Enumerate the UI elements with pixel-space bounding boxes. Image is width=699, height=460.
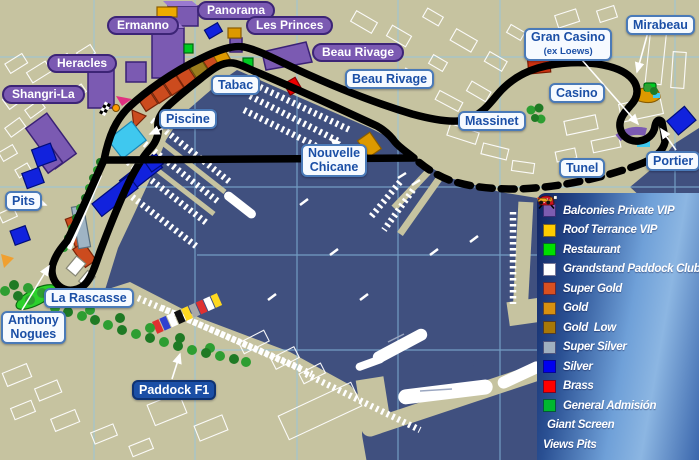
f1-car-icon bbox=[537, 193, 557, 207]
anthony-line1: Anthony bbox=[8, 313, 59, 327]
legend-swatch bbox=[543, 224, 556, 237]
label-pits: Pits bbox=[5, 191, 42, 211]
anthony-line2: Nogues bbox=[10, 327, 56, 341]
label-nouvelle-chicane: Nouvelle Chicane bbox=[301, 144, 367, 177]
label-ermanno: Ermanno bbox=[107, 16, 179, 35]
legend-label: Giant Screen bbox=[547, 419, 614, 431]
label-shangri-la: Shangri-La bbox=[2, 85, 85, 104]
legend-swatch bbox=[543, 282, 556, 295]
nouvelle-line1: Nouvelle bbox=[308, 146, 360, 160]
label-gran-casino: Gran Casino (ex Loews) bbox=[524, 28, 612, 61]
legend-item: Roof Terrance VIP bbox=[543, 221, 699, 241]
label-les-princes: Les Princes bbox=[246, 16, 333, 35]
legend-label: General Admisión bbox=[563, 400, 656, 412]
monaco-circuit-map: Panorama Ermanno Les Princes Beau Rivage… bbox=[0, 0, 699, 460]
label-portier: Portier bbox=[646, 151, 699, 171]
nouvelle-line2: Chicane bbox=[310, 160, 359, 174]
label-piscine: Piscine bbox=[159, 109, 217, 129]
label-paddock-f1: Paddock F1 bbox=[132, 380, 216, 400]
gran-casino-line1: Gran Casino bbox=[531, 30, 605, 44]
legend-swatch bbox=[543, 263, 556, 276]
label-massinet: Massinet bbox=[458, 111, 526, 131]
orange-dot bbox=[113, 105, 120, 112]
legend-item-views-pits: Views Pits bbox=[543, 435, 699, 455]
legend-item: General Admisión bbox=[543, 396, 699, 416]
legend-item: Super Silver bbox=[543, 338, 699, 358]
label-tabac: Tabac bbox=[211, 75, 260, 95]
label-heracles: Heracles bbox=[47, 54, 117, 73]
label-anthony-nogues: Anthony Nogues bbox=[1, 311, 66, 344]
label-casino: Casino bbox=[549, 83, 605, 103]
label-beau-rivage-district: Beau Rivage bbox=[312, 43, 404, 62]
legend-swatch bbox=[543, 360, 556, 373]
label-mirabeau: Mirabeau bbox=[626, 15, 695, 35]
legend-swatch bbox=[543, 302, 556, 315]
legend-label: Grandstand Paddock Club bbox=[563, 263, 699, 275]
legend-label: Brass bbox=[563, 380, 593, 392]
legend-label: Gold Low bbox=[563, 322, 616, 334]
legend-swatch bbox=[543, 399, 556, 412]
label-beau-rivage: Beau Rivage bbox=[345, 69, 434, 89]
legend-label: Roof Terrance VIP bbox=[563, 224, 657, 236]
legend-item: Gold Low bbox=[543, 318, 699, 338]
legend-label: Silver bbox=[563, 361, 593, 373]
legend-item: Super Gold bbox=[543, 279, 699, 299]
legend-swatch bbox=[543, 380, 556, 393]
legend-panel: Balconies Private VIP Roof Terrance VIP … bbox=[537, 193, 699, 460]
legend-label: Gold bbox=[563, 302, 588, 314]
legend-swatch bbox=[543, 321, 556, 334]
legend-swatch bbox=[543, 341, 556, 354]
legend-swatch bbox=[543, 243, 556, 256]
legend-item: Restaurant bbox=[543, 240, 699, 260]
legend-item-giant-screen: TV Giant Screen bbox=[543, 416, 699, 436]
legend-item: Balconies Private VIP bbox=[543, 201, 699, 221]
legend-label: Super Silver bbox=[563, 341, 627, 353]
legend-item: Brass bbox=[543, 377, 699, 397]
legend-item: Gold bbox=[543, 299, 699, 319]
legend-label: Restaurant bbox=[563, 244, 620, 256]
legend-item: Grandstand Paddock Club bbox=[543, 260, 699, 280]
label-tunel: Tunel bbox=[559, 158, 605, 178]
legend-label: Views Pits bbox=[543, 439, 596, 451]
legend-label: Balconies Private VIP bbox=[563, 205, 674, 217]
legend-label: Super Gold bbox=[563, 283, 622, 295]
legend-item: Silver bbox=[543, 357, 699, 377]
label-la-rascasse: La Rascasse bbox=[44, 288, 134, 308]
gran-casino-line2: (ex Loews) bbox=[531, 45, 605, 59]
